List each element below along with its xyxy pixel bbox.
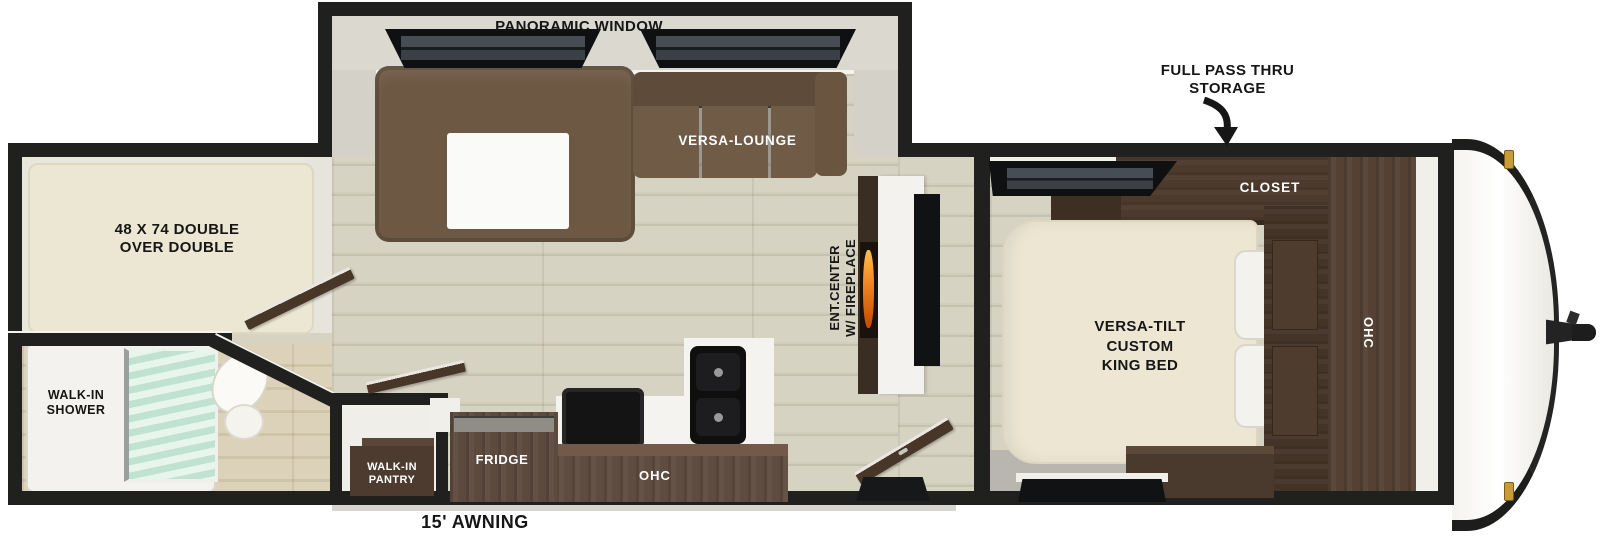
fireplace-flame bbox=[863, 250, 874, 328]
bedroom-window-top bbox=[987, 161, 1179, 196]
walk-in-pantry-label: WALK-IN PANTRY bbox=[344, 461, 440, 488]
wardrobe-panel bbox=[1272, 346, 1318, 436]
fireplace bbox=[860, 242, 878, 338]
wall-left bbox=[8, 143, 22, 505]
bedroom-wall-left bbox=[974, 157, 990, 491]
closet-label: CLOSET bbox=[1210, 180, 1330, 196]
versa-lounge-label: VERSA-LOUNGE bbox=[650, 133, 825, 149]
awning-rail bbox=[332, 505, 956, 511]
kitchen-sink bbox=[690, 346, 746, 444]
fridge-label: FRIDGE bbox=[452, 452, 552, 468]
slideout-wall-right bbox=[898, 2, 912, 155]
bathroom-divider-wall bbox=[8, 331, 232, 346]
awning-label: 15' AWNING bbox=[385, 512, 565, 534]
slideout-side-wall-right bbox=[854, 70, 898, 157]
kitchen-ohc-label: OHC bbox=[600, 468, 710, 484]
versa-lounge-dinette bbox=[375, 66, 635, 242]
slideout-wall-left bbox=[318, 2, 332, 155]
window-glass bbox=[401, 36, 585, 60]
window-glass bbox=[1007, 168, 1153, 189]
window-glass bbox=[656, 36, 840, 60]
sink-drain bbox=[714, 413, 723, 422]
storage-arrow-icon bbox=[1198, 97, 1244, 149]
slideout-wall-top bbox=[318, 2, 912, 16]
bedroom-window-bottom bbox=[1018, 479, 1166, 502]
hitch-bar bbox=[1572, 324, 1596, 341]
panoramic-window-label: PANORAMIC WINDOW bbox=[454, 18, 704, 36]
fridge-top bbox=[454, 416, 554, 432]
tv-panel bbox=[914, 194, 940, 366]
cabinet-top-face bbox=[556, 444, 788, 456]
marker-light-bottom bbox=[1504, 482, 1514, 501]
shower-glass-door bbox=[124, 348, 218, 482]
entry-step-threshold bbox=[856, 477, 930, 501]
king-bed-label: VERSA-TILT CUSTOM KING BED bbox=[1040, 317, 1240, 376]
marker-light-top bbox=[1504, 150, 1514, 169]
wall-top-right bbox=[898, 143, 1454, 157]
full-pass-thru-storage-label: FULL PASS THRU STORAGE bbox=[1135, 62, 1320, 99]
front-interior-wall bbox=[1416, 164, 1440, 491]
slideout-side-wall-left bbox=[332, 70, 376, 157]
floorplan-diagram: PANORAMIC WINDOW FULL PASS THRU STORAGE … bbox=[0, 0, 1600, 540]
wardrobe-panel bbox=[1272, 240, 1318, 330]
door-handle bbox=[898, 447, 909, 456]
front-cap bbox=[1452, 139, 1559, 531]
ent-center-fireplace-label: ENT.CENTER W/ FIREPLACE bbox=[827, 213, 859, 363]
walk-in-shower-label: WALK-IN SHOWER bbox=[30, 388, 122, 419]
toilet-tank bbox=[224, 404, 264, 440]
sink-drain bbox=[714, 368, 723, 377]
versa-lounge-sofa bbox=[633, 72, 847, 178]
sofa-armrest bbox=[815, 72, 847, 176]
pantry-wall-left bbox=[330, 393, 342, 491]
wall-right bbox=[1438, 143, 1454, 505]
bedroom-ohc-label: OHC bbox=[1360, 303, 1376, 363]
wall-top-left bbox=[8, 143, 332, 157]
stove bbox=[562, 388, 644, 448]
dinette-table bbox=[447, 133, 569, 229]
bunk-bed-label: 48 X 74 DOUBLE OVER DOUBLE bbox=[92, 221, 262, 258]
